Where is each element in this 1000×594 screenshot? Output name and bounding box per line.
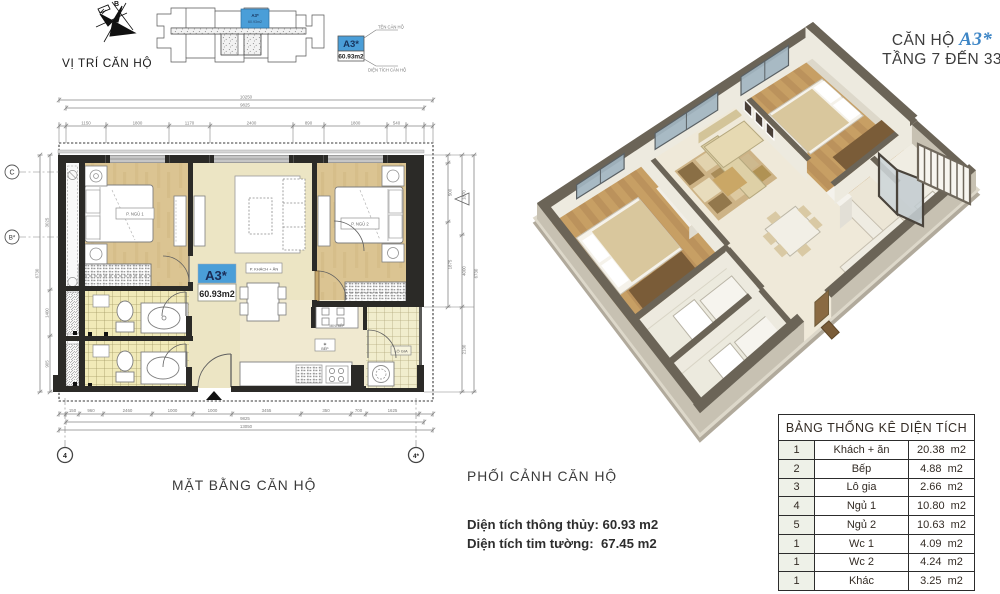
svg-text:150: 150 [69,408,77,413]
svg-text:C: C [9,170,14,177]
svg-text:1400: 1400 [45,308,50,318]
svg-text:890: 890 [305,121,313,126]
svg-text:9825: 9825 [240,103,250,108]
svg-text:1800: 1800 [133,121,143,126]
svg-text:60.93m2: 60.93m2 [199,289,235,299]
svg-text:700: 700 [355,408,363,413]
svg-text:6730: 6730 [35,268,40,278]
svg-text:1150: 1150 [81,121,91,126]
svg-text:2460: 2460 [123,408,133,413]
svg-text:A3*: A3* [343,39,359,50]
svg-text:A3*: A3* [205,268,228,283]
svg-text:LÔ GIA: LÔ GIA [394,349,408,354]
svg-text:4: 4 [63,453,67,460]
svg-text:540: 540 [393,121,401,126]
svg-text:3025: 3025 [45,217,50,227]
svg-text:60.93m2: 60.93m2 [338,54,364,61]
svg-text:3455: 3455 [262,408,272,413]
svg-text:1875: 1875 [448,259,453,269]
svg-text:6730: 6730 [474,268,479,278]
svg-text:1625: 1625 [388,408,398,413]
svg-text:1000: 1000 [208,408,218,413]
svg-text:BẾP: BẾP [321,346,329,351]
svg-text:2400: 2400 [247,121,257,126]
svg-text:A3*: A3* [251,13,259,18]
svg-text:1170: 1170 [185,121,195,126]
svg-text:MINI BẾP: MINI BẾP [330,323,346,328]
svg-text:DIỆN TÍCH CĂN HỘ: DIỆN TÍCH CĂN HỘ [368,68,407,73]
svg-text:4000: 4000 [462,266,467,276]
svg-text:P. NGỦ 1: P. NGỦ 1 [126,212,144,217]
svg-text:TÊN CĂN HỘ: TÊN CĂN HỘ [378,25,405,30]
svg-text:B*: B* [9,235,16,242]
svg-text:1800: 1800 [351,121,361,126]
svg-text:2130: 2130 [462,344,467,354]
svg-text:1000: 1000 [168,408,178,413]
svg-text:500: 500 [448,188,453,196]
svg-text:4*: 4* [413,453,420,460]
svg-text:905: 905 [45,360,50,368]
svg-text:P. NGỦ 2: P. NGỦ 2 [351,222,369,227]
svg-text:P. KHÁCH + ĂN: P. KHÁCH + ĂN [250,267,279,272]
svg-text:60.93m2: 60.93m2 [248,20,262,24]
svg-text:350: 350 [322,408,330,413]
svg-text:960: 960 [87,408,95,413]
svg-text:13050: 13050 [240,424,253,429]
svg-text:10250: 10250 [240,95,253,100]
svg-text:9825: 9825 [240,416,250,421]
svg-text:B: B [114,1,119,8]
